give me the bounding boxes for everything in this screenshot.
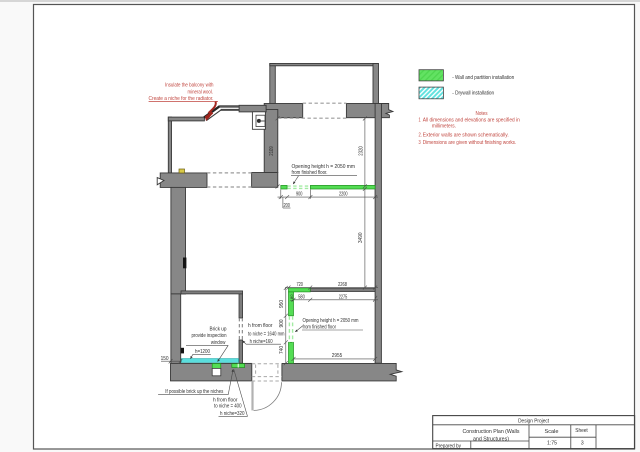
svg-text:Dimensions are given without f: Dimensions are given without finishing w… — [423, 140, 517, 146]
svg-text:900: 900 — [279, 319, 285, 327]
svg-text:950: 950 — [279, 300, 285, 308]
svg-text:3490: 3490 — [358, 232, 364, 243]
svg-text:h from floor: h from floor — [213, 398, 238, 404]
svg-text:3: 3 — [581, 440, 584, 446]
svg-text:180: 180 — [290, 294, 294, 301]
svg-text:900: 900 — [296, 191, 303, 197]
svg-text:Brick up: Brick up — [210, 326, 227, 332]
svg-text:Construction Plan (Walls: Construction Plan (Walls — [463, 429, 520, 435]
svg-text:1:75: 1:75 — [547, 441, 557, 447]
svg-text:720: 720 — [296, 282, 303, 288]
svg-text:3: 3 — [419, 140, 421, 146]
svg-text:2268: 2268 — [338, 282, 347, 288]
svg-text:740: 740 — [279, 346, 285, 354]
svg-text:- Wall and partition installa: - Wall and partition installation — [452, 75, 514, 81]
svg-text:Notes: Notes — [476, 111, 488, 117]
svg-text:Exterior walls are shown schem: Exterior walls are shown schematically. — [423, 133, 509, 139]
svg-text:h from floor: h from floor — [248, 323, 273, 329]
svg-text:Scale: Scale — [545, 429, 559, 435]
svg-text:to niche = 1640 mm: to niche = 1640 mm — [248, 331, 285, 337]
svg-text:- Drywall installation: - Drywall installation — [452, 91, 494, 97]
svg-text:Design Project: Design Project — [518, 418, 550, 424]
svg-text:1: 1 — [419, 118, 421, 124]
svg-text:provide inspection: provide inspection — [192, 333, 227, 339]
svg-text:580: 580 — [298, 294, 305, 300]
svg-text:h niche=160: h niche=160 — [250, 339, 273, 345]
svg-text:2200: 2200 — [339, 192, 348, 198]
svg-text:Prepared by: Prepared by — [436, 444, 462, 450]
svg-text:h niche=320: h niche=320 — [220, 411, 245, 417]
svg-text:If possible brick up the niche: If possible brick up the niches — [165, 389, 223, 395]
svg-text:200: 200 — [283, 203, 290, 209]
svg-text:mineral wool.: mineral wool. — [188, 89, 214, 95]
svg-text:to niche = 400: to niche = 400 — [214, 404, 242, 410]
svg-text:millimeters.: millimeters. — [432, 123, 456, 129]
svg-text:Opening height h = 2050 mm: Opening height h = 2050 mm — [303, 318, 359, 324]
svg-text:Sheet: Sheet — [575, 428, 588, 434]
svg-text:and Structures): and Structures) — [473, 436, 509, 442]
svg-text:150: 150 — [161, 356, 169, 362]
svg-text:2109: 2109 — [269, 146, 275, 156]
svg-text:2955: 2955 — [332, 353, 343, 359]
svg-text:Insulate the balcony with: Insulate the balcony with — [165, 82, 214, 88]
svg-text:2.: 2. — [419, 133, 422, 139]
svg-text:2275: 2275 — [339, 294, 348, 300]
svg-text:2320: 2320 — [358, 146, 364, 156]
